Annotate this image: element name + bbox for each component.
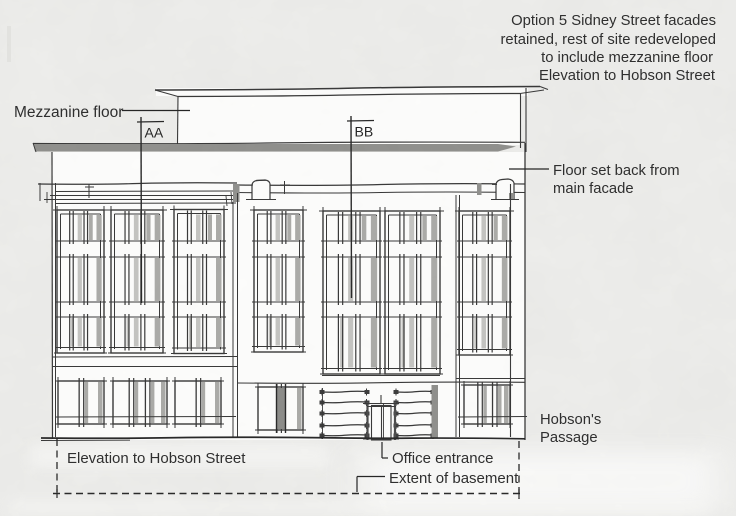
svg-text:Elevation to Hobson Street: Elevation to Hobson Street — [539, 68, 715, 84]
svg-text:Mezzanine floor: Mezzanine floor — [14, 104, 123, 121]
svg-text:to include mezzanine floor: to include mezzanine floor — [541, 50, 713, 66]
svg-text:retained, rest of site redevel: retained, rest of site redeveloped — [500, 32, 716, 48]
svg-text:Passage: Passage — [540, 430, 598, 446]
svg-text:Option 5 Sidney Street facades: Option 5 Sidney Street facades — [511, 13, 716, 29]
svg-text:main facade: main facade — [553, 181, 634, 197]
svg-text:Floor set back from: Floor set back from — [553, 163, 680, 179]
svg-text:Hobson's: Hobson's — [540, 412, 601, 428]
svg-text:Elevation to Hobson Street: Elevation to Hobson Street — [67, 450, 246, 467]
svg-text:Office entrance: Office entrance — [392, 450, 493, 467]
svg-text:Extent of basement: Extent of basement — [389, 470, 519, 487]
